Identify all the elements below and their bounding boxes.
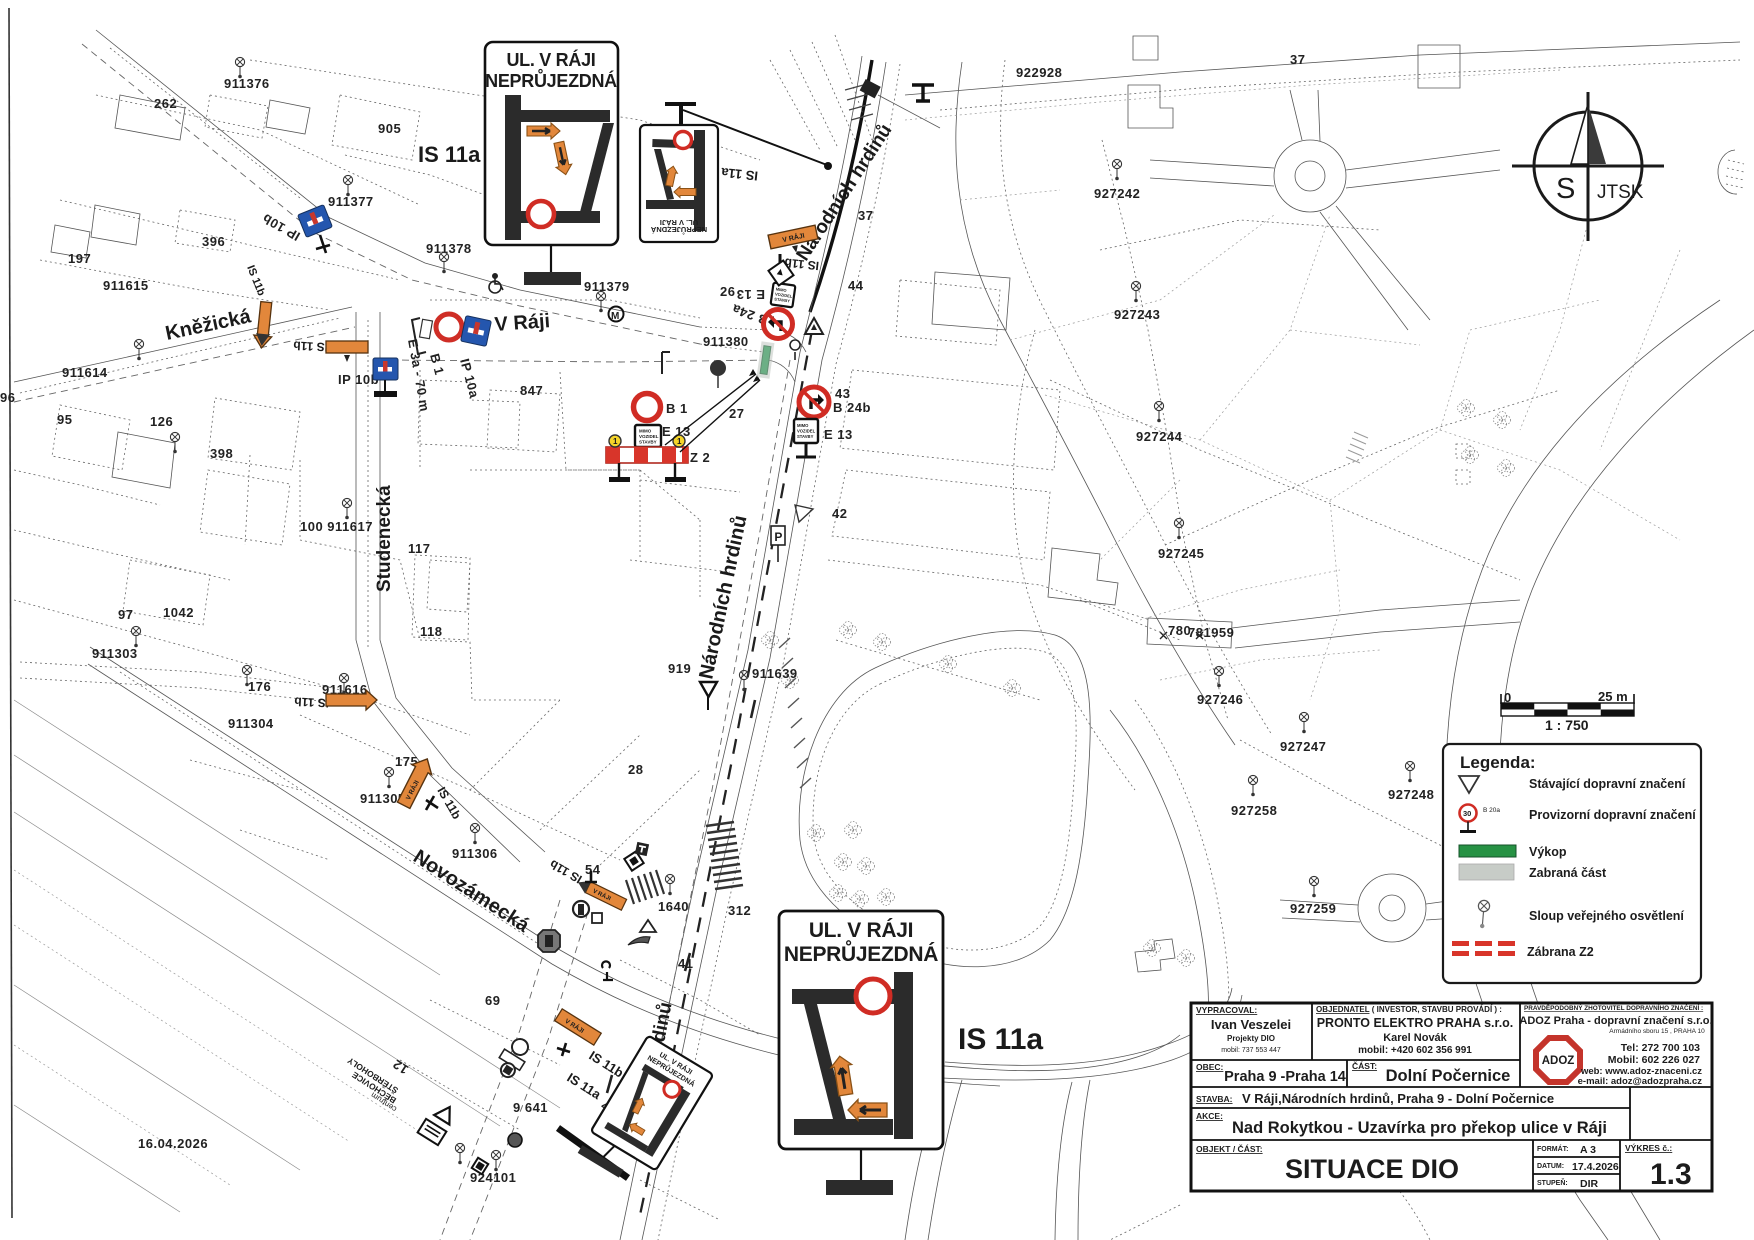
svg-text:117: 117 <box>408 541 430 556</box>
svg-text:922928: 922928 <box>1016 65 1062 80</box>
svg-text:UL. V RÁJI: UL. V RÁJI <box>809 919 913 942</box>
svg-text:mobil: 737 553 447: mobil: 737 553 447 <box>1221 1047 1281 1054</box>
svg-text:97: 97 <box>118 607 133 622</box>
svg-text:IS 11a: IS 11a <box>958 1023 1043 1056</box>
svg-text:UL. V RÁJI: UL. V RÁJI <box>506 49 595 70</box>
svg-text:9 641: 9 641 <box>513 1100 548 1115</box>
svg-text:Praha 9 -Praha 14: Praha 9 -Praha 14 <box>1224 1069 1346 1085</box>
svg-text:B 1: B 1 <box>666 401 688 416</box>
svg-text:STAVBY: STAVBY <box>639 440 657 445</box>
svg-text:OBEC:: OBEC: <box>1196 1062 1224 1072</box>
svg-text:Projekty DIO: Projekty DIO <box>1227 1034 1275 1043</box>
svg-text:41: 41 <box>678 956 693 971</box>
svg-text:VOZIDEL: VOZIDEL <box>639 434 659 439</box>
svg-text:16.04.2026: 16.04.2026 <box>138 1136 208 1151</box>
svg-text:Stávající dopravní značení: Stávající dopravní značení <box>1529 777 1686 791</box>
svg-text:Tel: 272 700 103: Tel: 272 700 103 <box>1621 1042 1700 1054</box>
svg-text:DATUM:: DATUM: <box>1537 1163 1564 1170</box>
svg-text:911379: 911379 <box>584 279 630 294</box>
svg-text:54: 54 <box>585 862 601 877</box>
svg-text:911306: 911306 <box>452 846 498 861</box>
svg-text:E 13: E 13 <box>736 287 765 302</box>
svg-text:919: 919 <box>668 661 691 676</box>
svg-text:STAVBY: STAVBY <box>797 434 814 439</box>
svg-text:28: 28 <box>628 762 643 777</box>
svg-text:VOZIDEL: VOZIDEL <box>797 429 816 434</box>
svg-text:911378: 911378 <box>426 241 472 256</box>
svg-text:OBJEDNATEL ( INVESTOR, STAVBU: OBJEDNATEL ( INVESTOR, STAVBU PROVÁDÍ ) … <box>1316 1005 1502 1014</box>
svg-text:FORMÁT:: FORMÁT: <box>1537 1144 1569 1153</box>
svg-text:JTSK: JTSK <box>1597 182 1644 203</box>
svg-text:398: 398 <box>210 446 233 461</box>
svg-text:Mobil: 602 226 027: Mobil: 602 226 027 <box>1608 1054 1700 1066</box>
svg-text:197: 197 <box>68 251 91 266</box>
svg-text:911377: 911377 <box>328 194 374 209</box>
svg-text:262: 262 <box>154 96 177 111</box>
svg-text:43: 43 <box>835 386 850 401</box>
svg-text:A 3: A 3 <box>1580 1144 1596 1156</box>
svg-text:100 911617: 100 911617 <box>300 519 373 534</box>
svg-text:MIMO: MIMO <box>797 423 809 428</box>
svg-text:Studenecká: Studenecká <box>374 485 395 592</box>
svg-text:IS 11b: IS 11b <box>294 694 329 710</box>
svg-text:Ivan Veszelei: Ivan Veszelei <box>1211 1017 1291 1032</box>
svg-text:PRONTO ELEKTRO PRAHA s.r.o.: PRONTO ELEKTRO PRAHA s.r.o. <box>1317 1016 1514 1030</box>
svg-text:927242: 927242 <box>1094 186 1140 201</box>
svg-text:P: P <box>774 530 782 544</box>
svg-text:VYPRACOVAL:: VYPRACOVAL: <box>1196 1005 1257 1015</box>
svg-text:1.3: 1.3 <box>1650 1158 1692 1191</box>
svg-text:312: 312 <box>728 903 751 918</box>
svg-text:IS 11b: IS 11b <box>293 338 328 354</box>
svg-text:M: M <box>611 311 619 322</box>
svg-text:MIMO: MIMO <box>639 429 652 434</box>
svg-text:42: 42 <box>832 506 847 521</box>
svg-text:27: 27 <box>729 406 744 421</box>
svg-text:ADOZ Praha - dopravní značení: ADOZ Praha - dopravní značení s.r.o. <box>1519 1015 1712 1027</box>
svg-text:927258: 927258 <box>1231 803 1277 818</box>
svg-text:V Ráji,Národních hrdinů, Praha: V Ráji,Národních hrdinů, Praha 9 - Dolní… <box>1242 1091 1554 1106</box>
svg-text:1640: 1640 <box>658 899 689 914</box>
svg-text:E 13: E 13 <box>824 427 853 442</box>
svg-text:911303: 911303 <box>92 646 138 661</box>
svg-text:69: 69 <box>485 993 500 1008</box>
svg-text:B 20a: B 20a <box>1483 807 1500 814</box>
svg-text:927244: 927244 <box>1136 429 1183 444</box>
svg-text:911639: 911639 <box>752 666 798 681</box>
svg-text:PRAVDĚPODOBNÝ ZHOTOVITEL DOPR: PRAVDĚPODOBNÝ ZHOTOVITEL DOPRAVNÍHO ZNAČ… <box>1524 1003 1703 1012</box>
svg-text:mobil: +420 602 356 991: mobil: +420 602 356 991 <box>1358 1045 1472 1056</box>
svg-text:Legenda:: Legenda: <box>1460 753 1536 772</box>
svg-text:Armádního sboru 15 , PRAHA 1: Armádního sboru 15 , PRAHA 10 <box>1609 1028 1705 1035</box>
svg-text:Zabraná část: Zabraná část <box>1529 866 1607 880</box>
svg-text:118: 118 <box>420 624 442 639</box>
svg-text:ADOZ: ADOZ <box>1542 1055 1575 1067</box>
svg-text:17.4.2026: 17.4.2026 <box>1572 1161 1619 1173</box>
svg-text:911376: 911376 <box>224 76 270 91</box>
svg-text:44: 44 <box>848 278 864 293</box>
svg-text:Výkop: Výkop <box>1529 845 1567 859</box>
svg-text:Karel Novák: Karel Novák <box>1383 1032 1447 1044</box>
svg-text:Provizorní dopravní značení: Provizorní dopravní značení <box>1529 808 1696 822</box>
svg-text:905: 905 <box>378 121 401 136</box>
svg-text:927245: 927245 <box>1158 546 1204 561</box>
svg-text:Sloup veřejného osvětlení: Sloup veřejného osvětlení <box>1529 909 1684 923</box>
svg-text:V Ráji: V Ráji <box>494 310 551 336</box>
svg-text:VÝKRES č.:: VÝKRES č.: <box>1625 1142 1672 1153</box>
svg-text:927246: 927246 <box>1197 692 1243 707</box>
svg-text:30: 30 <box>1463 809 1471 818</box>
svg-text:NEPRŮJEZDNÁ: NEPRŮJEZDNÁ <box>485 69 617 91</box>
svg-text:927259: 927259 <box>1290 901 1336 916</box>
svg-text:25 m: 25 m <box>1598 689 1628 704</box>
svg-text:781959: 781959 <box>1188 625 1234 640</box>
svg-text:1 : 750: 1 : 750 <box>1545 717 1589 733</box>
svg-text:STAVBA:: STAVBA: <box>1196 1094 1233 1104</box>
svg-text:1042: 1042 <box>163 605 194 620</box>
svg-text:396: 396 <box>202 234 225 249</box>
svg-text:Nad Rokytkou - Uzavírka pro př: Nad Rokytkou - Uzavírka pro překop ulice… <box>1232 1119 1607 1137</box>
svg-text:STUPEŇ:: STUPEŇ: <box>1537 1178 1568 1187</box>
svg-text:911380: 911380 <box>703 334 749 349</box>
svg-text:SITUACE DIO: SITUACE DIO <box>1285 1154 1459 1184</box>
svg-text:Zábrana Z2: Zábrana Z2 <box>1527 945 1594 959</box>
svg-text:911614: 911614 <box>62 365 108 380</box>
svg-text:S: S <box>1556 173 1575 205</box>
svg-text:96: 96 <box>0 390 15 405</box>
svg-text:927243: 927243 <box>1114 307 1160 322</box>
svg-text:B 24b: B 24b <box>833 400 871 415</box>
svg-text:Dolní Počernice: Dolní Počernice <box>1386 1067 1511 1085</box>
svg-text:Z 2: Z 2 <box>690 450 710 465</box>
svg-text:176: 176 <box>248 679 271 694</box>
svg-text:IS 11a: IS 11a <box>418 142 481 167</box>
svg-text:NEPRŮJEZDNÁ: NEPRŮJEZDNÁ <box>784 940 938 966</box>
svg-text:DIR: DIR <box>1580 1178 1599 1190</box>
svg-text:927248: 927248 <box>1388 787 1434 802</box>
svg-text:911615: 911615 <box>103 278 149 293</box>
svg-text:37: 37 <box>858 208 873 223</box>
svg-text:AKCE:: AKCE: <box>1196 1111 1223 1121</box>
svg-text:1: 1 <box>613 437 618 446</box>
svg-text:1: 1 <box>677 437 682 446</box>
svg-text:e-mail: adoz@adozpraha.cz: e-mail: adoz@adozpraha.cz <box>1578 1076 1703 1087</box>
svg-text:911304: 911304 <box>228 716 274 731</box>
svg-text:26: 26 <box>720 284 735 299</box>
svg-text:126: 126 <box>150 414 173 429</box>
svg-text:ČÁST:: ČÁST: <box>1352 1060 1377 1071</box>
svg-text:NEPRŮJEZDNÁ: NEPRŮJEZDNÁ <box>650 225 707 235</box>
svg-text:OBJEKT / ČÁST:: OBJEKT / ČÁST: <box>1196 1143 1263 1154</box>
svg-text:847: 847 <box>520 383 543 398</box>
svg-text:95: 95 <box>57 412 72 427</box>
svg-text:37: 37 <box>1290 52 1305 67</box>
svg-text:927247: 927247 <box>1280 739 1326 754</box>
